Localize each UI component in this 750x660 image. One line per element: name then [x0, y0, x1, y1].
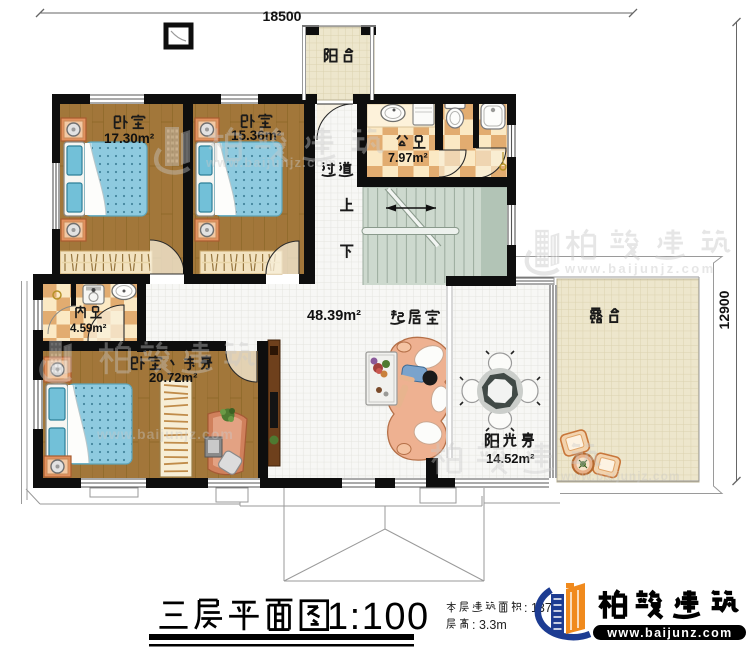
- svg-text:www.baijunjz.com: www.baijunjz.com: [205, 155, 337, 170]
- svg-text:www.baijunjz.com: www.baijunjz.com: [96, 426, 234, 442]
- svg-text:www.baijunjz.com: www.baijunjz.com: [564, 261, 716, 276]
- svg-text:: 3.3m: : 3.3m: [472, 618, 507, 632]
- svg-text:www.baijunz.com: www.baijunz.com: [606, 626, 732, 640]
- svg-text:17.30m²: 17.30m²: [104, 131, 155, 146]
- svg-text:18500: 18500: [263, 8, 302, 24]
- svg-text:4.59m²: 4.59m²: [70, 323, 107, 335]
- svg-text:7.97m²: 7.97m²: [388, 151, 428, 165]
- svg-text:12900: 12900: [716, 290, 732, 329]
- svg-text:48.39m²: 48.39m²: [307, 308, 361, 324]
- svg-text:www.baijunjz.com: www.baijunjz.com: [560, 469, 681, 483]
- svg-text:1:100: 1:100: [327, 596, 430, 638]
